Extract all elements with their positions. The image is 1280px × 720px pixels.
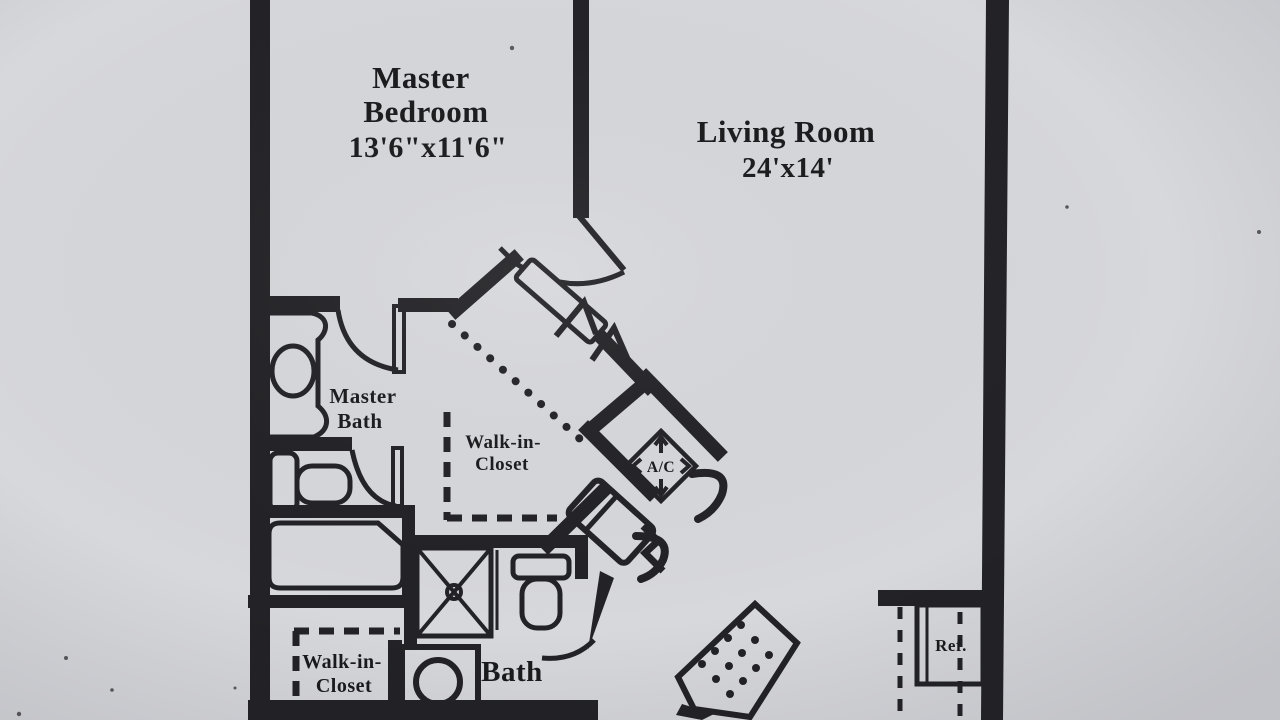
floor-plan-drawing: A/C Master Bedroom 13'6"x11'6" Living Ro… xyxy=(0,0,1280,720)
floor-plan-photo: A/C Master Bedroom 13'6"x11'6" Living Ro… xyxy=(0,0,1280,720)
photo-vignette-overlay xyxy=(0,0,1280,720)
